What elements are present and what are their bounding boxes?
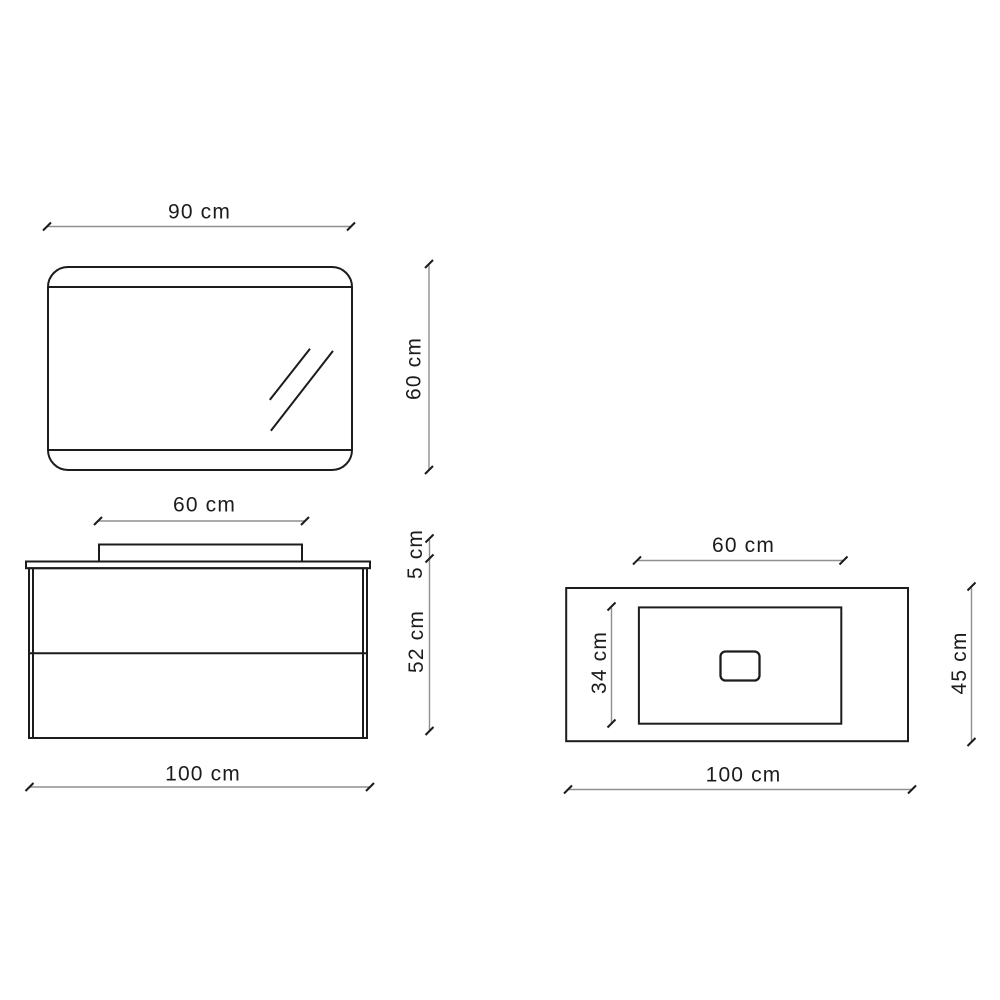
svg-text:45 cm: 45 cm — [948, 632, 971, 695]
svg-text:34 cm: 34 cm — [588, 631, 611, 694]
svg-text:100 cm: 100 cm — [706, 764, 782, 787]
svg-text:60 cm: 60 cm — [712, 534, 775, 557]
svg-text:5 cm: 5 cm — [404, 529, 427, 579]
svg-text:60 cm: 60 cm — [173, 494, 236, 517]
svg-text:90 cm: 90 cm — [168, 201, 231, 224]
svg-text:52 cm: 52 cm — [405, 610, 428, 673]
svg-text:100 cm: 100 cm — [165, 763, 241, 786]
svg-text:60 cm: 60 cm — [403, 337, 426, 400]
